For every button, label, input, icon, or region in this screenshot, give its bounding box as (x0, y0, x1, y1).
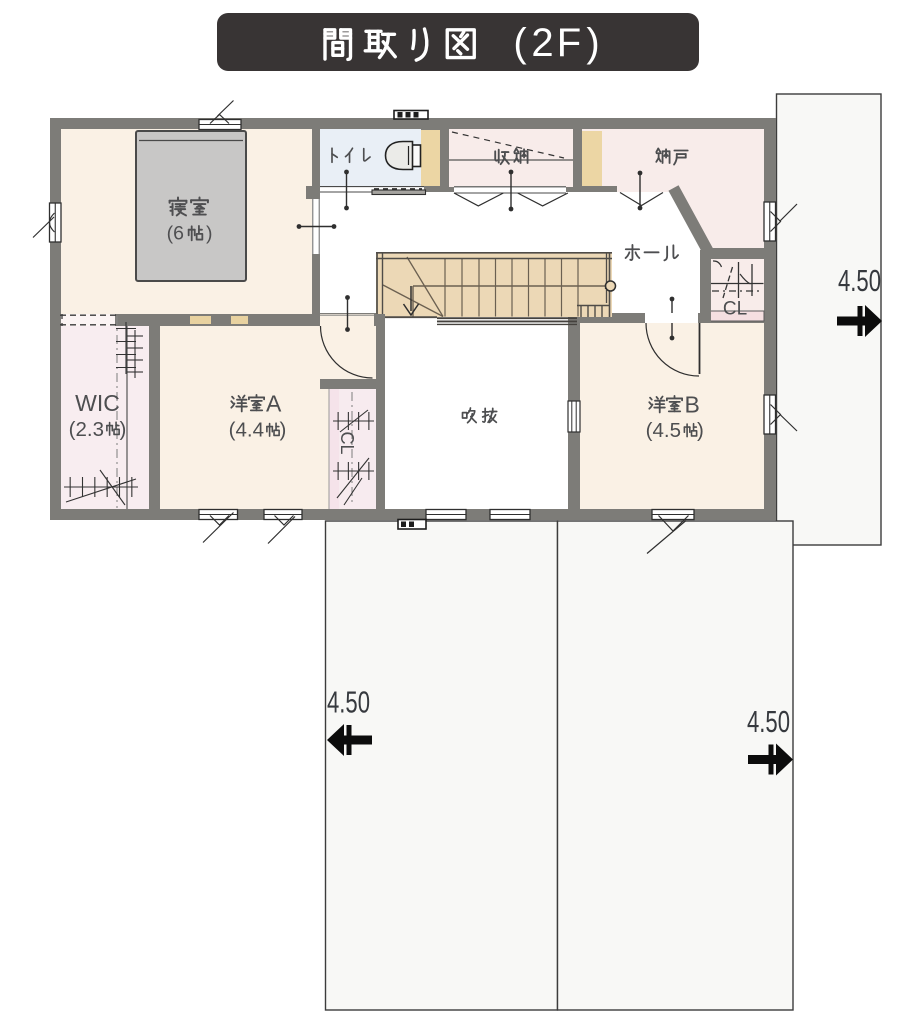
svg-text:CL: CL (337, 431, 357, 454)
svg-text:B: B (685, 392, 700, 418)
svg-text:A: A (266, 391, 282, 417)
svg-text:F: F (557, 21, 581, 65)
svg-text:): ) (697, 419, 704, 442)
svg-text:4.50: 4.50 (327, 685, 370, 720)
svg-text:2: 2 (531, 21, 553, 65)
svg-text:(4.5: (4.5 (646, 419, 681, 442)
svg-text:(4.4: (4.4 (229, 419, 264, 442)
svg-text:CL: CL (723, 299, 747, 320)
svg-text:): ) (280, 419, 287, 442)
svg-text:4.50: 4.50 (838, 263, 881, 298)
svg-text:(6: (6 (167, 223, 184, 245)
svg-text:(: ( (513, 21, 527, 65)
svg-text:4.50: 4.50 (747, 704, 790, 739)
svg-text:): ) (120, 418, 127, 441)
svg-text:): ) (206, 223, 213, 245)
svg-text:WIC: WIC (75, 390, 120, 416)
svg-text:): ) (586, 21, 599, 65)
svg-text:(2.3: (2.3 (69, 418, 104, 441)
